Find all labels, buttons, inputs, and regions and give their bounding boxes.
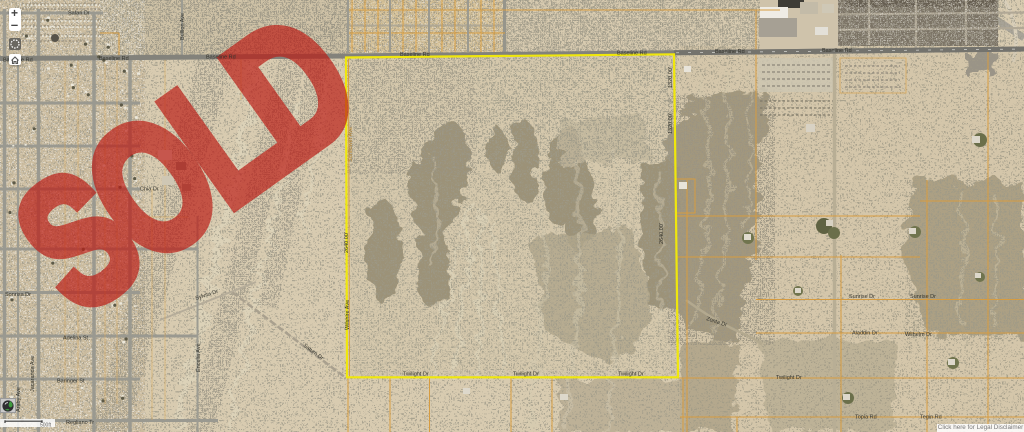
- svg-text:Baseline Rd: Baseline Rd: [400, 52, 430, 58]
- svg-text:Araby Ave: Araby Ave: [16, 387, 22, 412]
- svg-text:Topia Rd: Topia Rd: [855, 415, 877, 421]
- svg-text:2640.00': 2640.00': [344, 232, 350, 253]
- svg-text:Sunflower Ave: Sunflower Ave: [348, 127, 354, 162]
- svg-text:Regliano Tr: Regliano Tr: [66, 420, 94, 426]
- svg-text:Baseline Rd: Baseline Rd: [617, 51, 647, 57]
- svg-text:Bullion Ave: Bullion Ave: [180, 13, 186, 40]
- svg-text:Twilight Dr: Twilight Dr: [618, 372, 644, 378]
- svg-text:Jacaranda Ave: Jacaranda Ave: [30, 356, 36, 392]
- svg-text:Twilight Dr: Twilight Dr: [403, 372, 429, 378]
- svg-text:Encelia Ave: Encelia Ave: [196, 343, 202, 372]
- svg-text:Sunrise Dr: Sunrise Dr: [910, 294, 936, 300]
- svg-text:500ft: 500ft: [40, 422, 52, 428]
- svg-text:Safari Dr: Safari Dr: [68, 11, 90, 17]
- svg-text:Baseline Rd: Baseline Rd: [206, 55, 236, 61]
- svg-text:Tegin Rd: Tegin Rd: [920, 415, 942, 421]
- svg-text:Twilight Dr: Twilight Dr: [776, 375, 802, 381]
- svg-text:Wilshire Ave: Wilshire Ave: [345, 300, 351, 330]
- svg-text:Baseline Rd: Baseline Rd: [715, 49, 745, 55]
- svg-text:Sunrise Dr: Sunrise Dr: [849, 294, 875, 300]
- svg-text:Twilight Dr: Twilight Dr: [513, 372, 539, 378]
- svg-text:Baseline Rd: Baseline Rd: [99, 56, 129, 62]
- svg-text:1320.00': 1320.00': [668, 113, 674, 134]
- svg-text:2640.00': 2640.00': [659, 223, 665, 244]
- svg-text:Baseline Rd: Baseline Rd: [822, 48, 852, 54]
- svg-text:1320.00': 1320.00': [668, 67, 674, 88]
- svg-text:Chia Dr: Chia Dr: [140, 187, 159, 193]
- svg-text:Sonrisa Dr: Sonrisa Dr: [5, 292, 31, 298]
- svg-text:Aladdin Dr: Aladdin Dr: [852, 331, 878, 337]
- svg-text:Wilhelm Dr: Wilhelm Dr: [905, 332, 932, 338]
- svg-text:Baringer St: Baringer St: [57, 379, 85, 385]
- svg-text:Adelina St: Adelina St: [63, 336, 89, 342]
